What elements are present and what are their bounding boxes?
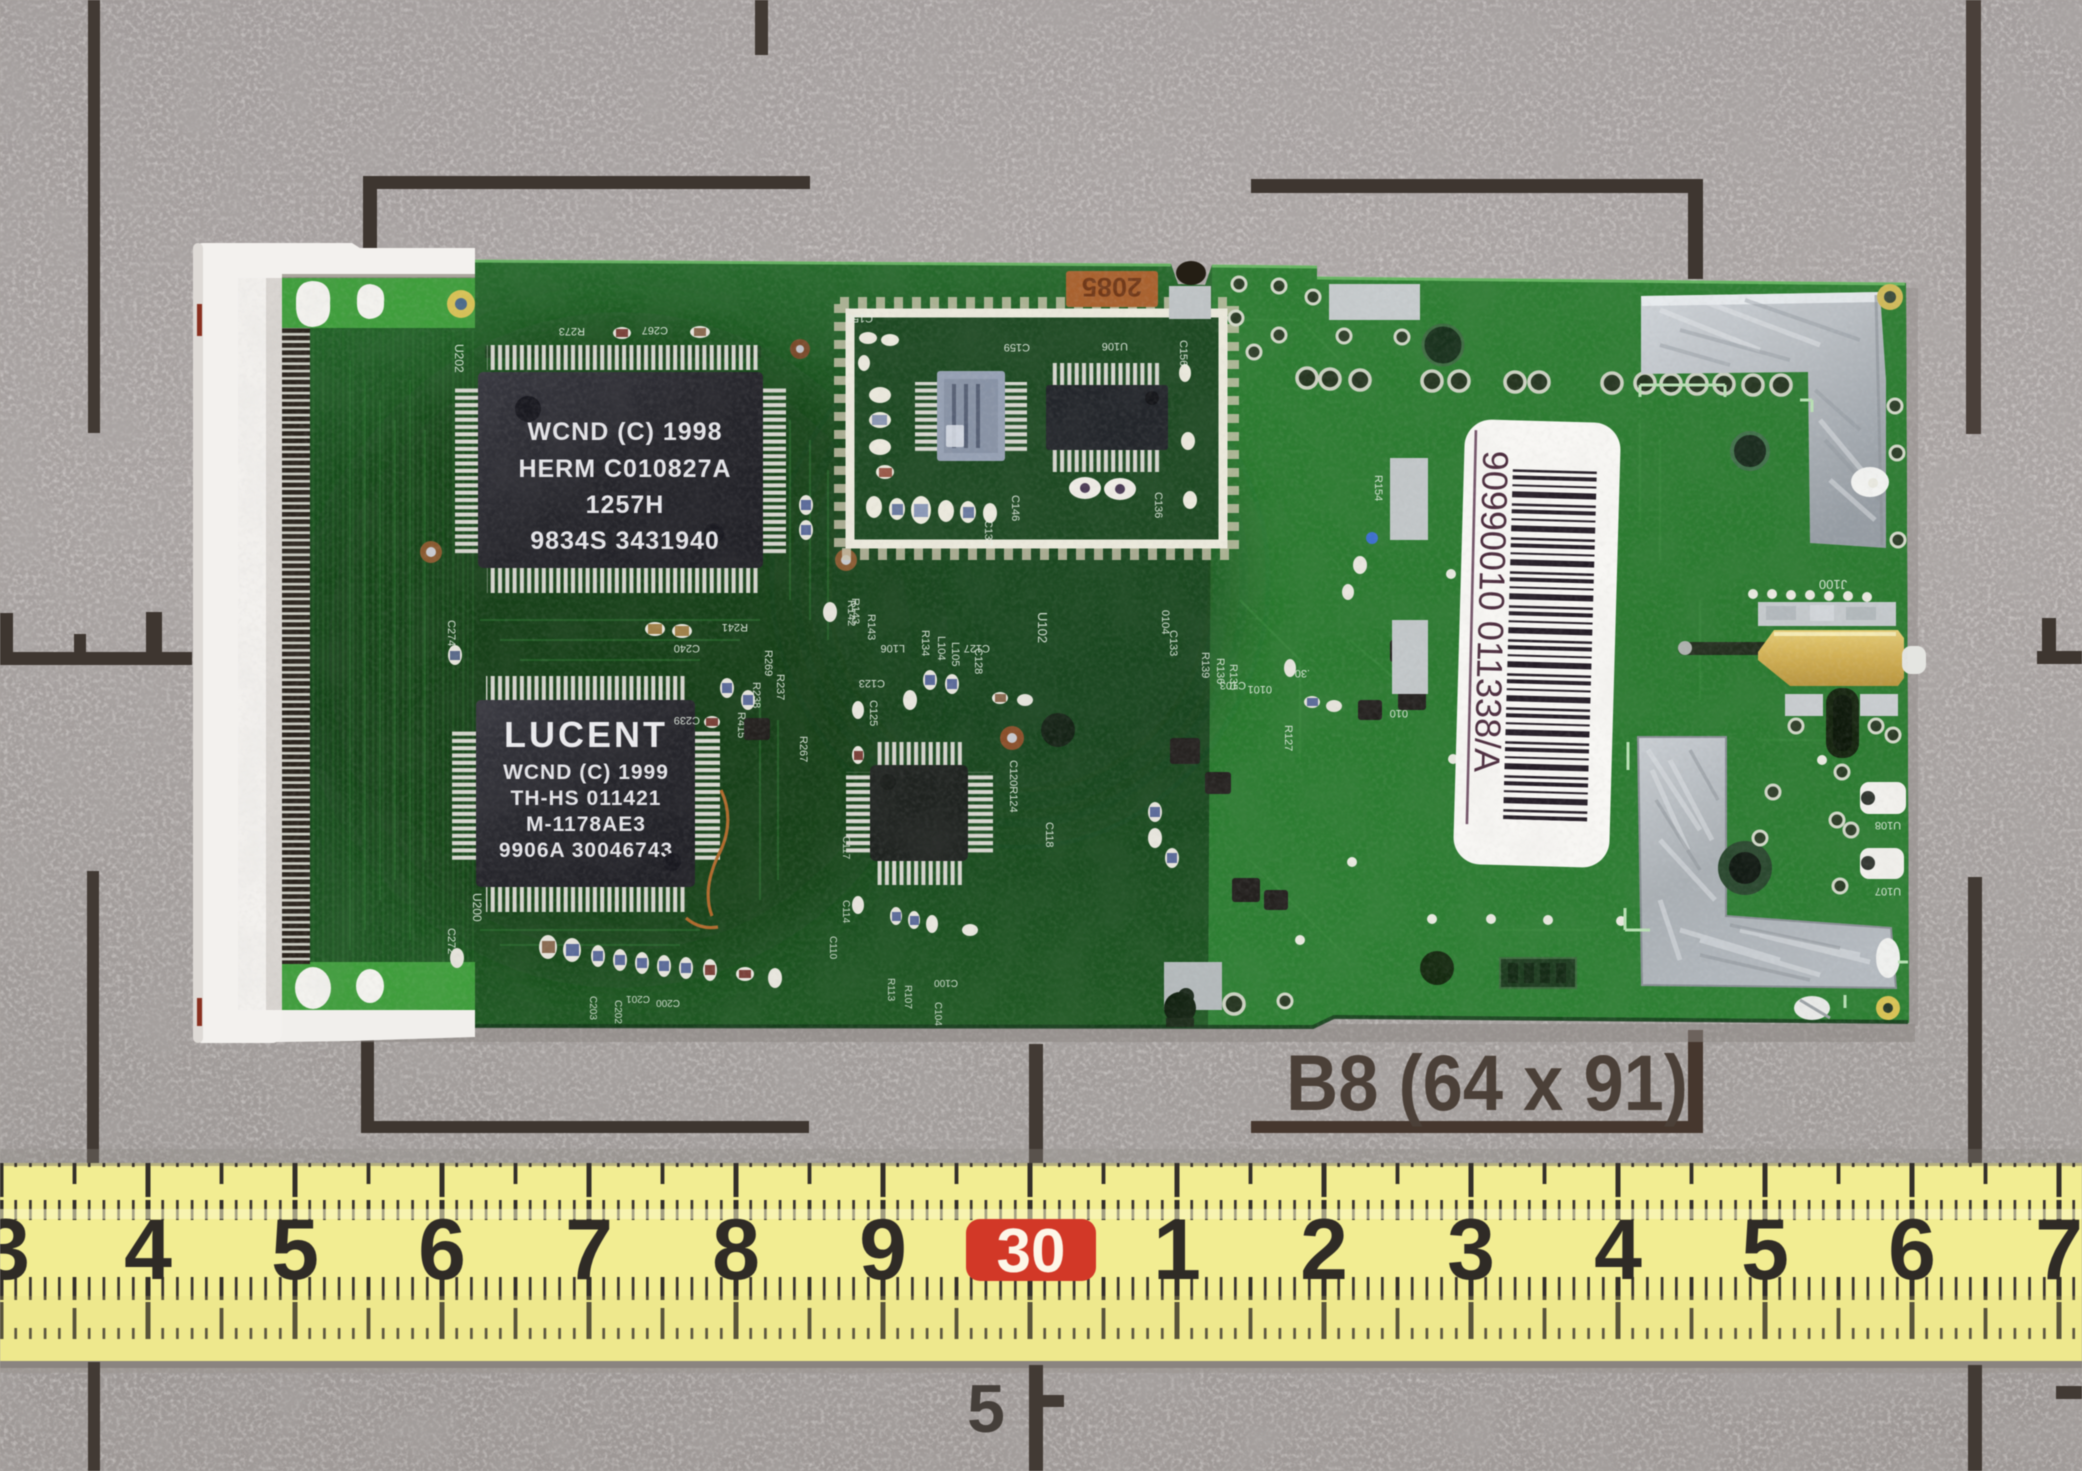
svg-text:8: 8 bbox=[712, 1202, 760, 1298]
svg-text:7: 7 bbox=[2035, 1202, 2082, 1298]
svg-text:30: 30 bbox=[997, 1217, 1066, 1286]
svg-text:9: 9 bbox=[859, 1202, 907, 1298]
svg-text:3: 3 bbox=[1447, 1202, 1495, 1298]
svg-text:4: 4 bbox=[124, 1202, 172, 1298]
svg-text:5: 5 bbox=[271, 1202, 319, 1298]
svg-text:6: 6 bbox=[418, 1202, 466, 1298]
svg-text:4: 4 bbox=[1594, 1202, 1642, 1298]
svg-text:7: 7 bbox=[565, 1202, 613, 1298]
svg-text:2: 2 bbox=[1300, 1202, 1348, 1298]
svg-text:5: 5 bbox=[1741, 1202, 1789, 1298]
svg-text:6: 6 bbox=[1888, 1202, 1936, 1298]
svg-text:1: 1 bbox=[1153, 1202, 1201, 1298]
svg-text:B8 (64 x 91): B8 (64 x 91) bbox=[1286, 1038, 1688, 1127]
svg-text:5: 5 bbox=[967, 1371, 1005, 1447]
svg-text:3: 3 bbox=[0, 1202, 30, 1298]
